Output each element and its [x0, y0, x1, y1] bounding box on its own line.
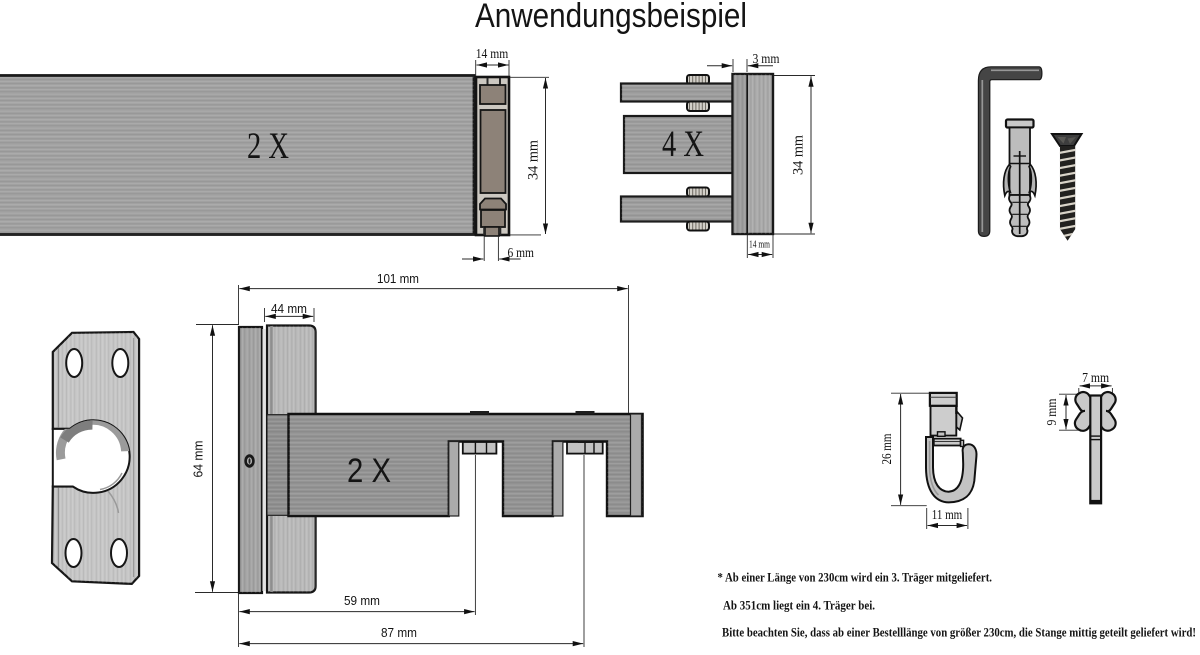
svg-text:4 X: 4 X	[662, 124, 704, 165]
svg-text:2 X: 2 X	[347, 452, 391, 490]
svg-text:7 mm: 7 mm	[1082, 370, 1109, 385]
svg-text:14 mm: 14 mm	[476, 46, 509, 61]
svg-text:2 X: 2 X	[247, 126, 289, 167]
svg-text:26 mm: 26 mm	[879, 433, 894, 464]
svg-text:87 mm: 87 mm	[381, 625, 417, 640]
svg-text:Ab 351cm liegt ein 4. Träger b: Ab 351cm liegt ein 4. Träger bei.	[723, 598, 875, 613]
svg-text:14 mm: 14 mm	[749, 240, 770, 251]
svg-text:9 mm: 9 mm	[1044, 398, 1059, 425]
svg-text:34 mm: 34 mm	[791, 135, 807, 175]
svg-text:11 mm: 11 mm	[932, 507, 963, 522]
svg-text:34 mm: 34 mm	[526, 140, 542, 180]
svg-text:64 mm: 64 mm	[191, 441, 206, 478]
svg-text:Bitte beachten Sie, dass ab ei: Bitte beachten Sie, dass ab einer Bestel…	[722, 625, 1196, 640]
svg-text:Anwendungsbeispiel: Anwendungsbeispiel	[475, 0, 747, 35]
svg-text:3 mm: 3 mm	[753, 51, 780, 66]
svg-text:101 mm: 101 mm	[377, 271, 419, 286]
svg-text:59 mm: 59 mm	[344, 593, 380, 608]
svg-text:* Ab einer Länge von 230cm wir: * Ab einer Länge von 230cm wird ein 3. T…	[718, 570, 993, 585]
svg-text:44 mm: 44 mm	[271, 301, 307, 316]
svg-text:6 mm: 6 mm	[508, 245, 535, 260]
